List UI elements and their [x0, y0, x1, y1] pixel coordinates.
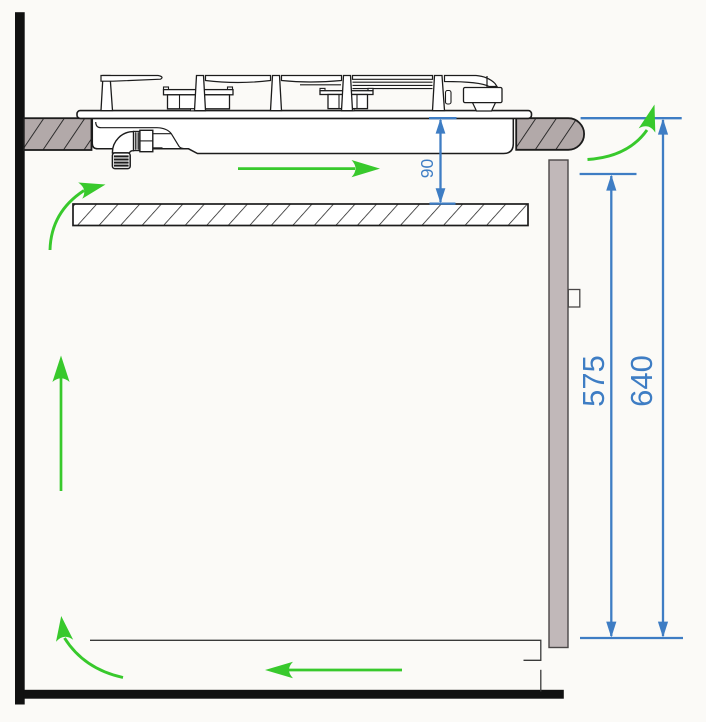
svg-text:575: 575: [576, 355, 611, 407]
svg-text:90: 90: [417, 159, 437, 179]
svg-text:640: 640: [624, 355, 659, 407]
